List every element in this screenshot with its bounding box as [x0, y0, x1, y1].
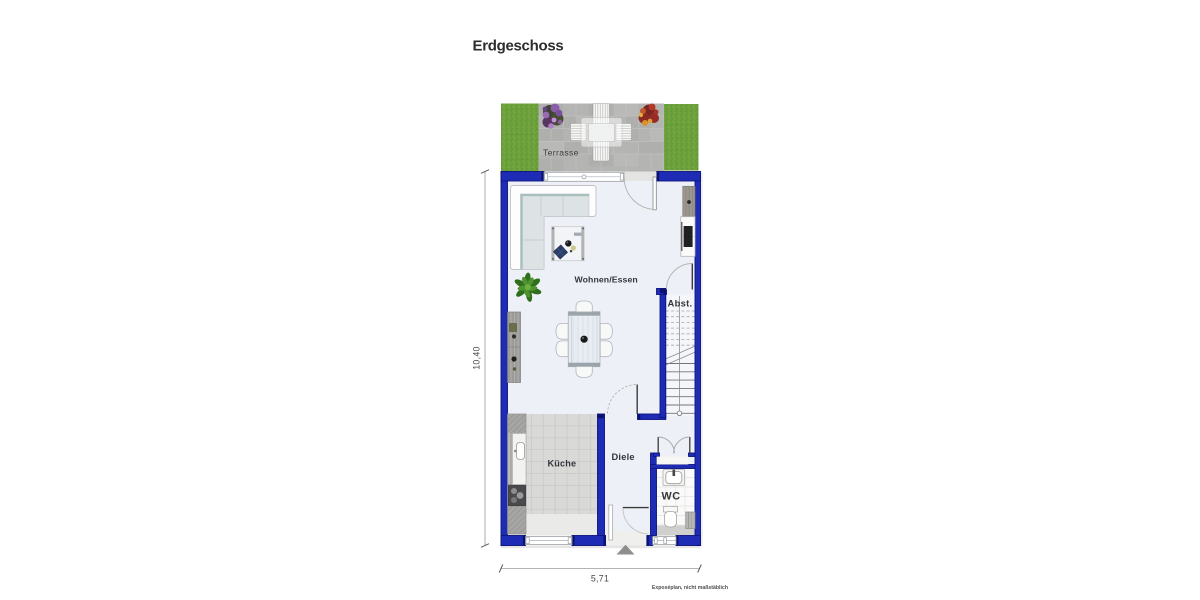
svg-text:WC: WC — [662, 491, 681, 503]
svg-text:5,71: 5,71 — [591, 574, 609, 584]
svg-text:Diele: Diele — [612, 452, 635, 462]
svg-text:Küche: Küche — [548, 459, 577, 469]
svg-text:10,40: 10,40 — [472, 346, 482, 370]
svg-text:Exposéplan, nicht maßstäblich: Exposéplan, nicht maßstäblich — [652, 585, 728, 591]
svg-text:Abst.: Abst. — [668, 298, 693, 309]
svg-text:Erdgeschoss: Erdgeschoss — [473, 38, 564, 55]
svg-text:Wohnen/Essen: Wohnen/Essen — [575, 275, 638, 285]
svg-text:Terrasse: Terrasse — [543, 148, 579, 158]
